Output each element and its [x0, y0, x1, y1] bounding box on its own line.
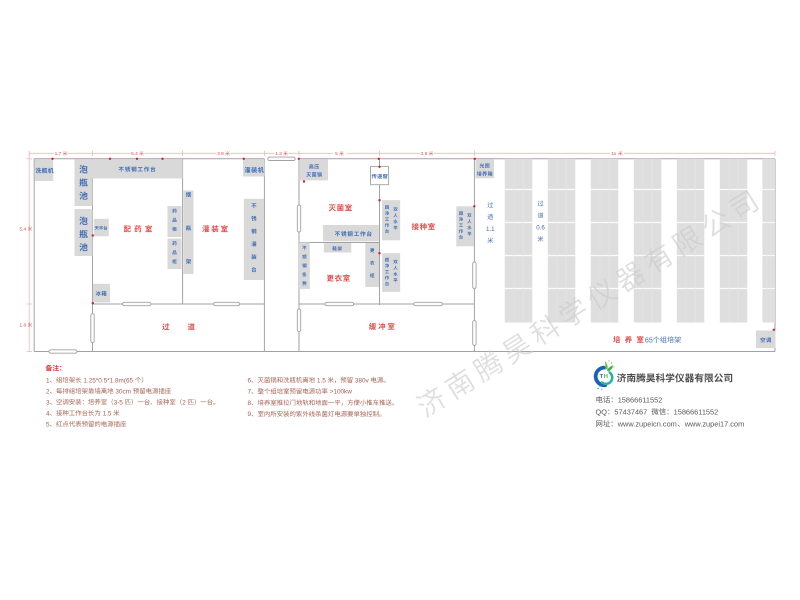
svg-text:3.6: 3.6 [421, 151, 429, 157]
svg-text:www.zupeicn.com: www.zupeicn.com [617, 419, 677, 428]
svg-text:www.zupei17.com: www.zupei17.com [684, 419, 745, 428]
svg-text:5.4: 5.4 [131, 151, 139, 157]
svg-text:3.8: 3.8 [217, 151, 225, 157]
svg-text:QQ: QQ [596, 407, 608, 416]
svg-text:1.1: 1.1 [486, 226, 495, 233]
svg-text:2: 2 [46, 388, 50, 395]
svg-text:8: 8 [248, 400, 252, 407]
svg-text:65: 65 [645, 336, 653, 344]
svg-text:15866611552: 15866611552 [674, 407, 719, 416]
svg-text:1.8: 1.8 [20, 323, 28, 329]
svg-text:15866611552: 15866611552 [618, 395, 663, 404]
svg-text:3: 3 [46, 399, 50, 406]
svg-text:1.5: 1.5 [101, 410, 113, 417]
svg-text:0.6: 0.6 [536, 224, 545, 231]
svg-text:11: 11 [611, 151, 617, 157]
svg-text:380v: 380v [353, 377, 370, 384]
svg-text:1.3: 1.3 [275, 151, 283, 157]
svg-text:57437467: 57437467 [614, 407, 651, 416]
svg-text:9: 9 [248, 411, 252, 418]
svg-text:5.4: 5.4 [20, 227, 28, 233]
svg-text:H: H [604, 374, 608, 380]
svg-text:>100kw: >100kw [328, 389, 352, 396]
svg-text:6: 6 [248, 377, 252, 384]
svg-text:1.25*0.5*1.8m(65: 1.25*0.5*1.8m(65 [82, 377, 135, 384]
svg-text:3-5: 3-5 [114, 399, 125, 406]
svg-text:30cm: 30cm [114, 388, 133, 395]
svg-text:7: 7 [248, 389, 252, 396]
svg-text:5: 5 [335, 151, 339, 157]
svg-text:5: 5 [46, 421, 50, 428]
svg-text:2: 2 [182, 399, 187, 406]
svg-text:1: 1 [46, 377, 50, 384]
svg-text:1.5: 1.5 [315, 377, 327, 384]
svg-text:4: 4 [46, 410, 50, 417]
svg-text:1.7: 1.7 [55, 151, 63, 157]
